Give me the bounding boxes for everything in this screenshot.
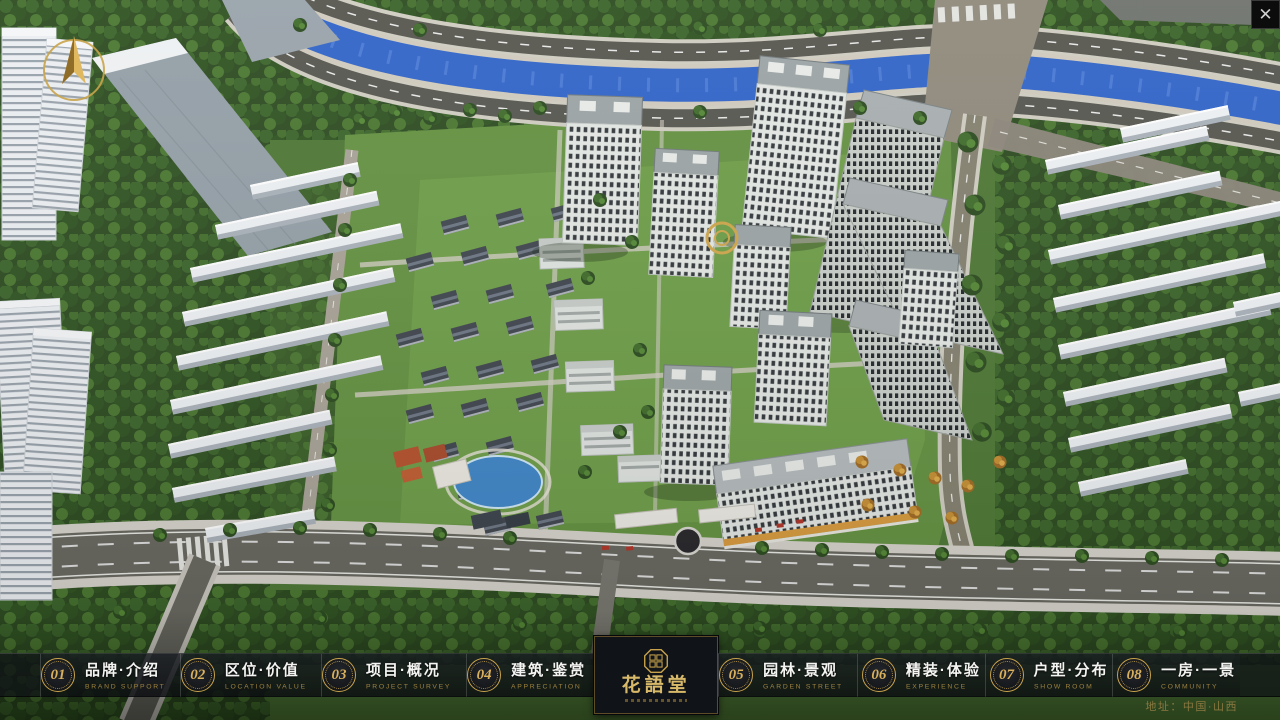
presentation-window: ✕ 01 品牌·介绍 BRAND SUPPORT 02 区位·价值 LOCATI… [0,0,1280,720]
nav-badge-03: 03 [322,658,356,692]
nav-item-project-survey[interactable]: 03 项目·概况 PROJECT SURVEY [321,653,466,697]
nav-item-unit-distribution[interactable]: 07 户型·分布 SHOW ROOM [985,653,1113,697]
nav-sublabel: GARDEN STREET [763,683,843,691]
close-button[interactable]: ✕ [1251,0,1280,29]
nav-label: 建筑·鉴赏 [511,659,586,680]
nav-sublabel: APPRECIATION [511,683,582,691]
nav-item-garden-landscape[interactable]: 05 园林·景观 GARDEN STREET [718,653,857,697]
logo-title: 花語堂 [622,676,691,697]
nav-label: 园林·景观 [763,659,838,680]
bottom-navbar: 01 品牌·介绍 BRAND SUPPORT 02 区位·价值 LOCATION… [0,653,1280,697]
nav-sublabel: COMMUNITY [1161,683,1218,691]
nav-sublabel: SHOW ROOM [1034,683,1094,691]
nav-item-fine-decoration[interactable]: 06 精装·体验 EXPERIENCE [857,653,985,697]
nav-sublabel: BRAND SUPPORT [85,683,166,691]
seal-emblem-icon [643,648,669,674]
nav-sublabel: EXPERIENCE [906,683,967,691]
nav-sublabel: PROJECT SURVEY [366,683,451,691]
nav-badge-02: 02 [181,658,215,692]
nav-label: 精装·体验 [906,659,981,680]
nav-badge-08: 08 [1117,658,1151,692]
nav-badge-07: 07 [990,658,1024,692]
nav-label: 品牌·介绍 [85,659,160,680]
nav-label: 项目·概况 [366,659,441,680]
nav-label: 一房·一景 [1161,659,1236,680]
nav-badge-05: 05 [719,658,753,692]
navbar-spacer-left [0,653,40,697]
nav-label: 区位·价值 [225,659,300,680]
nav-sublabel: LOCATION VALUE [225,683,307,691]
logo-huayutang[interactable]: 花語堂 [594,636,718,714]
nav-item-brand-intro[interactable]: 01 品牌·介绍 BRAND SUPPORT [40,653,180,697]
nav-badge-04: 04 [467,658,501,692]
address-label: 地址：中国·山西 [1145,698,1238,714]
nav-item-one-room-one-view[interactable]: 08 一房·一景 COMMUNITY [1112,653,1240,697]
nav-badge-01: 01 [41,658,75,692]
nav-badge-06: 06 [862,658,896,692]
logo-subtext [625,699,687,702]
navbar-spacer-right [1240,653,1280,697]
nav-label: 户型·分布 [1034,659,1109,680]
nav-item-location-value[interactable]: 02 区位·价值 LOCATION VALUE [180,653,321,697]
close-icon: ✕ [1258,5,1272,25]
nav-item-architecture[interactable]: 04 建筑·鉴赏 APPRECIATION [466,653,594,697]
